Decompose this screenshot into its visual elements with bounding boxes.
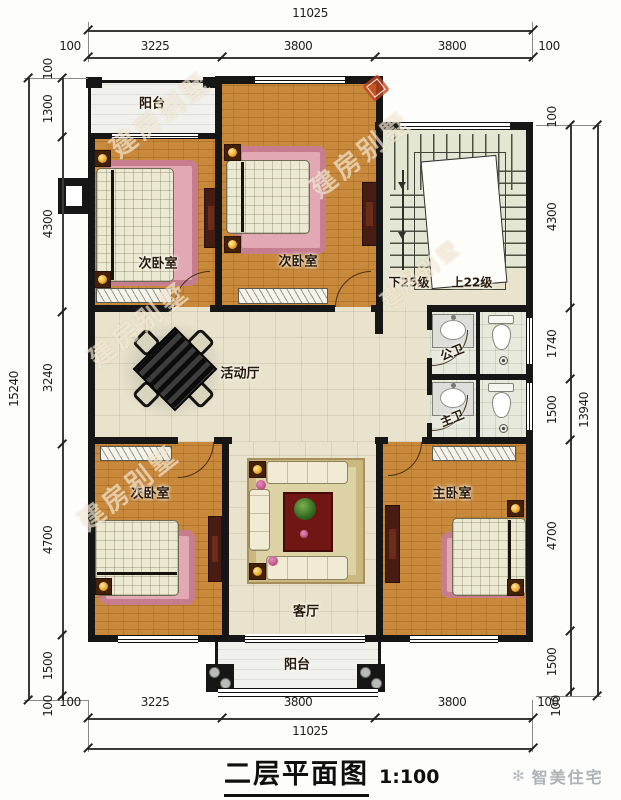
nightstand-lamp xyxy=(507,500,524,517)
dimension-line xyxy=(88,30,533,32)
wall xyxy=(510,122,533,130)
brand-logo: ✻ 智美住宅 xyxy=(512,764,604,788)
sofa xyxy=(266,461,348,484)
dimension-line xyxy=(570,125,572,696)
dimension-label: 4700 xyxy=(41,526,55,555)
faucet xyxy=(451,315,456,320)
dimension-label: 15240 xyxy=(7,371,21,407)
balcony-railing xyxy=(88,82,91,134)
sparkle-icon: ✻ xyxy=(512,767,527,785)
drawing-title: 二层平面图 1:100 xyxy=(224,752,439,797)
brand-text: 智美住宅 xyxy=(532,764,604,788)
wall xyxy=(427,374,533,380)
dimension-line xyxy=(28,78,30,700)
drawing-title-text: 二层平面图 xyxy=(224,752,369,797)
room-label-balcony-bottom: 阳台 xyxy=(284,654,310,673)
stair-break-panel xyxy=(421,155,508,289)
dimension-label: 100 xyxy=(59,39,80,53)
dimension-line xyxy=(597,125,599,696)
wardrobe xyxy=(100,446,172,461)
wall xyxy=(215,80,222,312)
wall xyxy=(214,437,232,444)
dimension-line xyxy=(88,718,533,720)
dimension-label: 100 xyxy=(41,695,55,716)
stair-arrowhead xyxy=(398,182,406,189)
wall xyxy=(88,635,118,642)
wall xyxy=(88,437,178,444)
flowers xyxy=(300,530,308,538)
nightstand-lamp xyxy=(94,150,111,167)
wall xyxy=(427,305,533,312)
corner-post xyxy=(86,77,102,88)
wall xyxy=(427,312,432,330)
dimension-label: 1500 xyxy=(545,648,559,677)
dimension-label: 4700 xyxy=(545,522,559,551)
potted-plant xyxy=(294,498,316,520)
dresser xyxy=(208,516,222,582)
room-label-bedroom-top-mid: 次卧室 xyxy=(278,251,317,270)
wall xyxy=(526,430,533,642)
wall xyxy=(210,305,335,312)
window xyxy=(526,318,533,364)
dimension-label: 3225 xyxy=(141,39,170,53)
room-label-bedroom-master: 主卧室 xyxy=(432,483,471,502)
drawing-scale: 1:100 xyxy=(379,766,439,788)
dimension-label: 13940 xyxy=(577,392,591,428)
wall xyxy=(476,312,480,374)
dresser xyxy=(385,505,400,583)
dimension-label: 100 xyxy=(59,695,80,709)
faucet xyxy=(451,383,456,388)
floor-lamp xyxy=(249,563,266,580)
room-label-bedroom-bottom-left: 次卧室 xyxy=(130,483,169,502)
bed-pillow-line xyxy=(241,162,244,232)
wardrobe xyxy=(238,288,328,304)
dimension-label: 100 xyxy=(538,39,559,53)
sofa xyxy=(266,556,348,580)
balcony-door-window xyxy=(112,133,198,139)
window xyxy=(410,635,498,643)
extension-line xyxy=(532,700,533,752)
flowers xyxy=(256,480,266,490)
dimension-label: 1300 xyxy=(41,95,55,124)
nightstand-lamp xyxy=(224,236,241,253)
stair-down-label: 下25级 xyxy=(389,274,430,291)
dimension-label: 1740 xyxy=(545,330,559,359)
dimension-label: 3240 xyxy=(41,364,55,393)
dimension-label: 3800 xyxy=(284,39,313,53)
bed-pillow-line xyxy=(111,170,114,280)
dimension-label: 3800 xyxy=(438,695,467,709)
dimension-label: 4300 xyxy=(545,203,559,232)
toilet-tank xyxy=(488,383,514,392)
window xyxy=(118,635,198,643)
dimension-label: 11025 xyxy=(292,6,328,20)
stair-arrowhead xyxy=(398,232,406,239)
bed-pillow-line xyxy=(97,572,177,575)
nightstand-lamp xyxy=(224,144,241,161)
wall xyxy=(88,305,172,312)
window xyxy=(255,76,345,84)
dimension-line xyxy=(88,57,533,59)
nightstand-lamp xyxy=(95,578,112,595)
room-label-bedroom-top-left: 次卧室 xyxy=(138,253,177,272)
room-label-balcony-top: 阳台 xyxy=(139,93,165,112)
dimension-label: 3800 xyxy=(284,695,313,709)
room-label-hall: 活动厅 xyxy=(220,363,259,382)
wall xyxy=(365,635,410,642)
wall xyxy=(222,444,229,642)
dimension-label: 1500 xyxy=(41,652,55,681)
dimension-label: 4300 xyxy=(41,210,55,239)
floor-lamp xyxy=(249,461,266,478)
dimension-label: 1500 xyxy=(545,396,559,425)
dimension-line xyxy=(88,748,533,750)
wall xyxy=(376,444,383,642)
wall xyxy=(422,437,533,444)
bed xyxy=(226,160,310,234)
floor-drain xyxy=(499,424,508,433)
dimension-line xyxy=(62,78,64,700)
wall xyxy=(375,437,388,444)
extension-line xyxy=(24,78,88,79)
stair-up-label: 上22级 xyxy=(452,274,493,291)
wardrobe xyxy=(96,288,172,303)
wall xyxy=(375,312,383,334)
wall xyxy=(198,133,217,139)
nightstand-lamp xyxy=(94,271,111,288)
nightstand-lamp xyxy=(507,579,524,596)
balcony-railing xyxy=(88,80,219,83)
dimension-label: 3800 xyxy=(438,39,467,53)
dresser xyxy=(362,182,377,246)
floor-plan-canvas: 11025 100 3225 3800 3800 100 100 3225 38… xyxy=(0,0,621,800)
wardrobe xyxy=(432,446,516,461)
dimension-label: 3225 xyxy=(141,695,170,709)
window xyxy=(400,122,510,130)
dimension-label: 11025 xyxy=(292,724,328,738)
wall xyxy=(376,76,383,312)
wall xyxy=(498,635,533,642)
flowers xyxy=(268,556,278,566)
wall xyxy=(91,133,112,139)
floor-drain xyxy=(499,356,508,365)
room-label-living-room: 客厅 xyxy=(293,601,319,620)
dimension-label: 100 xyxy=(41,58,55,79)
wall xyxy=(526,130,533,318)
sliding-balcony-door xyxy=(245,634,365,643)
sofa xyxy=(249,489,270,551)
dimension-label: 100 xyxy=(549,695,563,716)
window xyxy=(526,383,533,430)
dimension-label: 100 xyxy=(545,106,559,127)
wall xyxy=(476,380,480,440)
toilet-tank xyxy=(488,315,514,324)
